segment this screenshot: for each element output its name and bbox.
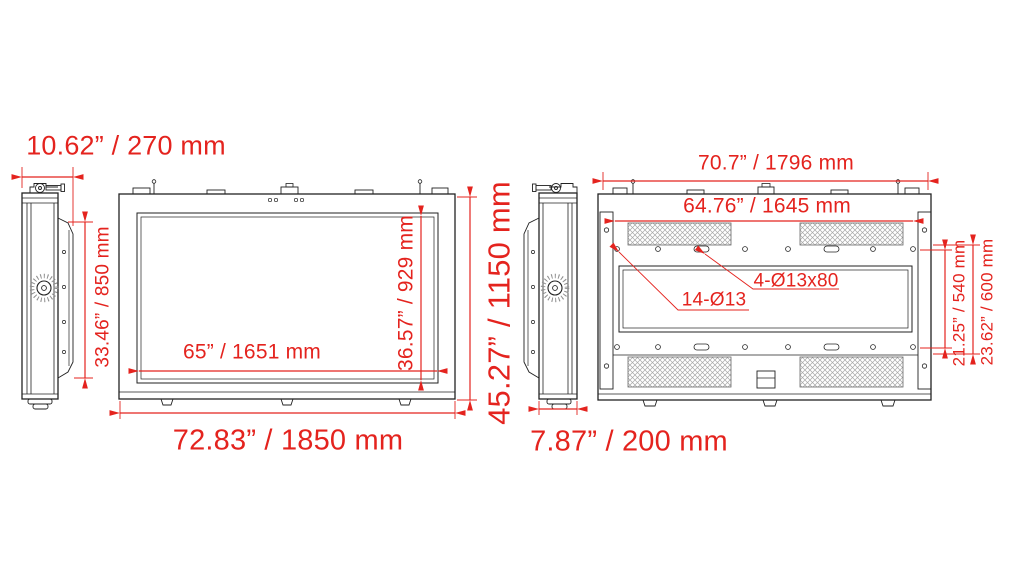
back-foot <box>881 400 895 406</box>
mount-bracket <box>524 218 539 378</box>
power-inlet <box>757 371 775 388</box>
top-clamp <box>30 184 58 194</box>
side-view-right <box>524 184 577 410</box>
mounting-holes-bottom <box>615 344 916 350</box>
bottom-foot <box>28 399 52 404</box>
screen-height-label: 36.57” / 929 mm <box>396 215 417 371</box>
overall-width-label: 72.83” / 1850 mm <box>173 427 404 456</box>
mounting-slot <box>824 344 839 350</box>
mounting-slot <box>694 246 709 252</box>
back-foot <box>643 400 657 406</box>
mounting-slot <box>824 246 839 252</box>
hole-callout-label: 14-Ø13 <box>682 291 747 310</box>
screen-width-label: 65” / 1651 mm <box>183 342 321 363</box>
slot-callout-label: 4-Ø13x80 <box>753 272 838 291</box>
overall-height-label: 45.27” / 1150 mm <box>484 181 515 425</box>
sensor-holes <box>268 198 303 201</box>
back-mount-width-label: 64.76” / 1645 mm <box>683 196 851 217</box>
side-flange <box>918 212 931 389</box>
vent-grille <box>800 223 903 245</box>
mount-height-inner-label: 21.25” / 540 mm <box>951 240 968 367</box>
depth-overall-label: 10.62” / 270 mm <box>26 133 226 160</box>
front-foot <box>161 399 173 405</box>
back-foot <box>763 400 777 406</box>
front-foot <box>281 399 293 405</box>
bottom-foot <box>547 399 571 404</box>
vent-grille <box>800 357 903 387</box>
mounting-holes-top <box>615 246 916 252</box>
vent-grille <box>628 223 731 245</box>
front-foot <box>399 399 411 405</box>
body-depth-label: 7.87” / 200 mm <box>530 428 728 457</box>
vent-grille <box>628 357 731 387</box>
pivot-knob <box>543 276 567 300</box>
mount-bracket <box>58 218 73 378</box>
side-flange <box>600 212 613 389</box>
mounting-slot <box>694 344 709 350</box>
bracket-height-label: 33.46” / 850 mm <box>94 226 113 367</box>
technical-dimension-drawing: 10.62” / 270 mm 33.46” / 850 mm 65” / 16… <box>0 0 1024 576</box>
pivot-knob <box>32 276 56 300</box>
back-overall-width-label: 70.7” / 1796 mm <box>698 153 854 174</box>
mount-height-outer-label: 23.62” / 600 mm <box>979 239 996 366</box>
side-view-left <box>22 184 73 410</box>
cabinet-body <box>539 193 577 399</box>
